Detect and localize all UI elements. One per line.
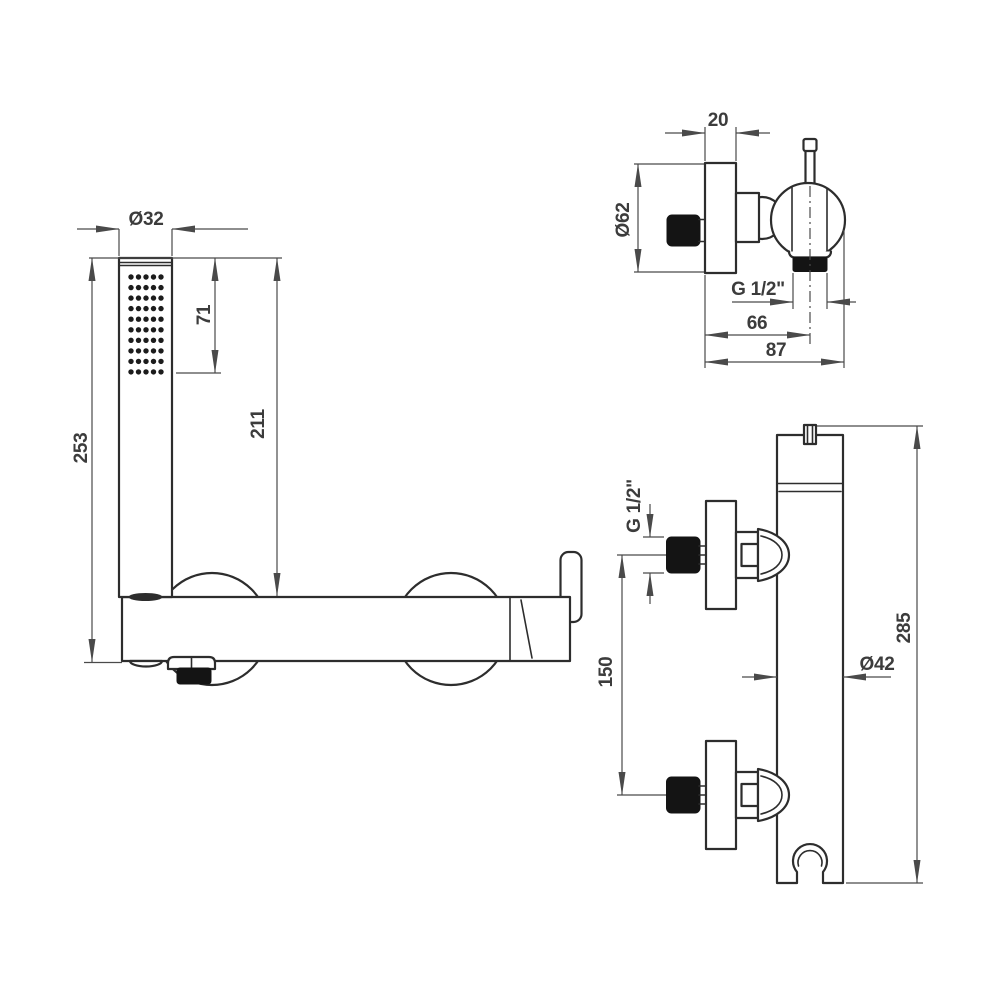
valve-body-top-view: [771, 183, 845, 257]
wall-flange-side-upper: [706, 501, 736, 609]
mixer-body-front: [122, 597, 570, 661]
inlet-connector-upper: [667, 501, 759, 609]
dim-total-depth: 87: [766, 340, 787, 361]
dim-outlet-thread: G 1/2": [731, 279, 785, 300]
shower-holder-ring: [798, 851, 822, 866]
dim-spray-length: 71: [194, 304, 215, 325]
lever-stem-top-view: [806, 150, 815, 184]
mixer-body-side: [777, 435, 843, 883]
spacer-top-view: [736, 193, 759, 242]
dim-inlet-spacing: 150: [596, 657, 617, 688]
front-view: [119, 258, 582, 685]
technical-drawing: Ø32 253 71 211 20: [0, 0, 1000, 1000]
drawing-canvas: Ø32 253 71 211 20: [0, 0, 1000, 1000]
dim-body-diameter: Ø42: [859, 654, 894, 675]
wall-flange-side-lower: [706, 741, 736, 849]
dim-total-height: 253: [71, 433, 92, 464]
wall-flange-top-view: [705, 163, 736, 273]
dim-inlet-thread: G 1/2": [624, 479, 645, 533]
dim-body-height: 285: [894, 612, 915, 644]
connector-square: [742, 784, 759, 806]
dim-outlet-offset: 66: [747, 313, 768, 334]
hand-shower-base-shadow: [129, 593, 163, 601]
aerator: [177, 668, 211, 684]
dim-head-diameter: Ø32: [128, 209, 163, 230]
lever-pin-side: [804, 425, 816, 444]
dim-flange-depth: 20: [708, 110, 729, 131]
dim-head-height: 211: [248, 408, 269, 438]
lever-cap-top-view: [804, 139, 817, 151]
inlet-nut-lower: [667, 777, 701, 813]
side-view: [667, 425, 844, 883]
inlet-nut-upper: [667, 537, 701, 573]
inlet-nut-top-view: [667, 215, 700, 246]
connector-square: [742, 544, 759, 566]
inlet-connector-lower: [667, 741, 759, 849]
dim-flange-diameter: Ø62: [613, 202, 634, 237]
holder-cone-bottom: [130, 661, 162, 667]
